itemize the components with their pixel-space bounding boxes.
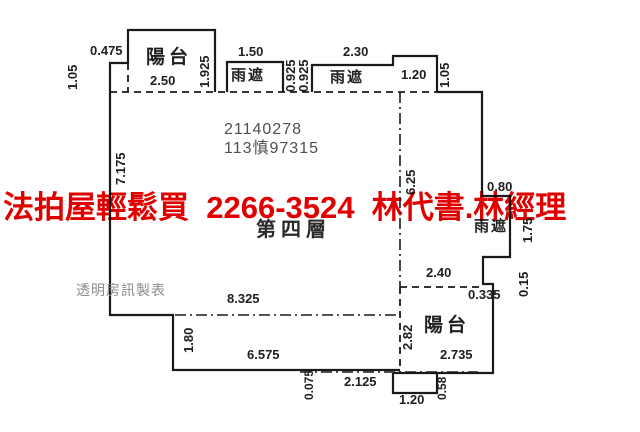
dimension-label: 0.475: [90, 44, 123, 57]
dimension-label: 8.325: [227, 292, 260, 305]
room-label-rain-shelter: 雨遮: [330, 70, 364, 85]
dimension-label: 2.30: [343, 45, 368, 58]
dimension-label: 1.50: [238, 45, 263, 58]
dimension-label: 2.735: [440, 348, 473, 361]
ad-overlay-text: 法拍屋輕鬆買 2266-3524 林代書.林經理: [3, 191, 640, 225]
dimension-label: 2.40: [426, 266, 451, 279]
dimension-label: 2.125: [344, 375, 377, 388]
registration-number: 21140278: [224, 122, 302, 138]
dimension-label: 6.575: [247, 348, 280, 361]
dimension-label: 1.925: [198, 55, 211, 88]
dimension-label: 0.15: [517, 272, 530, 297]
floor-plan: 0.4751.05陽台1.9252.501.50雨遮0.9250.9252.30…: [0, 0, 640, 432]
dimension-label: 0.075: [303, 370, 315, 400]
watermark-text: 透明房訊製表: [76, 283, 166, 297]
dimension-label: 1.05: [438, 63, 451, 88]
room-label-balcony: 陽台: [424, 316, 470, 335]
room-label-balcony: 陽台: [146, 48, 192, 67]
case-number: 113慎97315: [224, 141, 319, 157]
room-label-rain-shelter: 雨遮: [231, 68, 265, 83]
dimension-label: 0.925: [297, 59, 310, 92]
dimension-label: 1.80: [182, 328, 195, 353]
dimension-label: 7.175: [114, 152, 127, 185]
dimension-label: 1.20: [401, 68, 426, 81]
dimension-label: 1.20: [399, 393, 424, 406]
dimension-label: 0.335: [468, 288, 501, 301]
dimension-label: 2.50: [150, 74, 175, 87]
dimension-label: 0.58: [436, 377, 448, 400]
dimension-label: 1.05: [66, 65, 79, 90]
dimension-label: 2.82: [401, 325, 414, 350]
